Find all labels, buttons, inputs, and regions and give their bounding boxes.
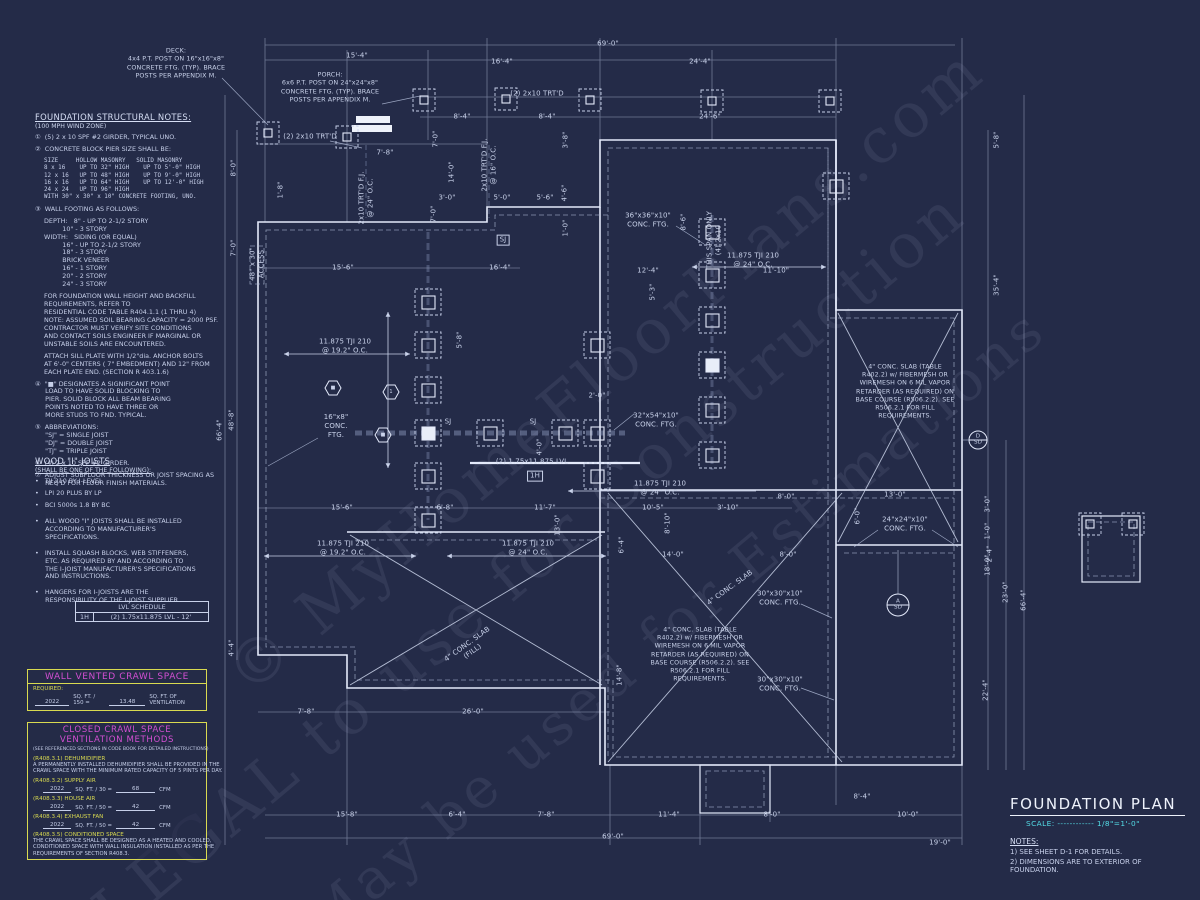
dim-label: 8'-0" [779,551,796,560]
dim-label: 6'-4" [618,536,627,553]
pointload-hex: ■ [381,432,386,438]
house-area: 2022 [43,804,71,811]
closed-crawl-title: CLOSED CRAWL SPACE [33,725,201,735]
footing-label: 30"x30"x10" CONC. FTG. [757,589,803,607]
dim-label: 5'-8" [456,331,465,348]
notes-head: NOTES: [1010,837,1185,846]
exhaust-unit: CFM [159,823,171,829]
joist-label: 11.875 TJI 210 @ 24" O.C. [634,479,686,497]
dim-label: 1'-8" [277,181,286,198]
structural-notes-panel: FOUNDATION STRUCTURAL NOTES: (100 MPH WI… [35,112,240,492]
dim-label: 7'-0" [432,130,441,147]
dim-label: 8'-0" [763,811,780,820]
house-formula: SQ. FT. / 50 = [75,805,112,811]
note-line: ④ "■" DESIGNATES A SIGNIFICANT POINT LOA… [35,381,240,421]
lvl-row-spec: (2) 1.75x11.875 LVL - 12' [94,613,208,621]
dim-label: 5'-6" [536,194,553,203]
vent-formula: SQ. FT. / 150 = [73,694,105,706]
joist-bullet: • ALL WOOD "I" JOISTS SHALL BE INSTALLED… [35,518,240,542]
section-head: (R408.3.4) EXHAUST FAN [33,814,201,820]
scale-value: 1/8"=1'-0" [1097,819,1140,828]
exhaust-value: 42 [116,822,155,829]
detail-marker: A SD [894,599,902,612]
scale-label: SCALE: [1026,819,1055,828]
dim-label: 10'-0" [897,811,919,820]
dim-label: 8'-4" [538,113,555,122]
dim-label: 24'-6" [699,113,721,122]
dim-label: 13'-0" [884,491,906,500]
joists-subtitle: (SHALL BE ONE OF THE FOLLOWING): [35,467,240,474]
dim-label: 15'-8" [336,811,358,820]
dim-label: 6'-0" [854,507,863,524]
note-line: ① (5) 2 x 10 SPF #2 GIRDER, TYPICAL UNO. [35,134,240,142]
dim-label: 8'-4" [853,793,870,802]
exhaust-area: 2022 [43,822,71,829]
footing-label: 24"x24"x10" CONC. FTG. [882,515,928,533]
joist-label: 11.875 TJI 210 @ 19.2" O.C. [319,337,371,355]
dim-label: 1'-0" [562,219,571,236]
joist-bullet: • LPI 20 PLUS BY LP [35,490,240,498]
dim-label: 19'-0" [929,839,951,848]
exhaust-formula: SQ. FT. / 50 = [75,823,112,829]
title-block: FOUNDATION PLAN SCALE: ------------ 1/8"… [1010,795,1185,874]
wall-vented-title: WALL VENTED CRAWL SPACE [33,672,201,682]
lvl-schedule-title: LVL SCHEDULE [75,601,209,613]
section-body: A PERMANENTLY INSTALLED DEHUMIDIFIER SHA… [33,762,201,775]
dim-label: 14'-8" [616,664,625,686]
note-line: DEPTH: 8" - UP TO 2-1/2 STORY 10" - 3 ST… [44,218,240,289]
dim-label: 66'-4" [1020,589,1029,611]
section-body: THE CRAWL SPACE SHALL BE DESIGNED AS A H… [33,838,201,858]
dim-label: 7'-0" [430,205,439,222]
notes-subtitle: (100 MPH WIND ZONE) [35,123,240,130]
dim-label: 15'-4" [346,52,368,61]
house-value: 42 [116,804,155,811]
note-line: ③ WALL FOOTING AS FOLLOWS: [35,206,240,214]
dim-label: 15'-6" [332,264,354,273]
dim-label: 3'-8" [562,131,571,148]
required-label: REQUIRED: [33,686,201,692]
pointload-hex: ■ [331,385,336,391]
dim-label: 18'-0" [984,554,993,576]
vent-result: 13.48 [109,699,145,706]
blueprint-sheet: © MyHomeFloorPlans.com ILLEGAL to use fo… [0,0,1200,900]
lvl-schedule: LVL SCHEDULE 1H (2) 1.75x11.875 LVL - 12… [75,601,209,622]
dim-label: 2'-0" [588,392,605,401]
dim-label: 7'-8" [376,149,393,158]
dim-label: 11'-4" [658,811,680,820]
dim-label: 6'-4" [448,811,465,820]
dim-label: 11'-7" [534,504,556,513]
joist-label: 2x10 TRT'D F.J. @ 16" O.C. [480,138,498,191]
joist-label: 2x10 TRT'D F.J. @ 24" O.C. [357,171,375,224]
joist-bullet: • BCI 5000s 1.8 BY BC [35,502,240,510]
dim-label: 12'-4" [637,267,659,276]
lvl-tag: 1H [527,471,543,482]
joist-label: 11.875 TJI 210 @ 24" O.C. [502,539,554,557]
supply-value: 68 [116,786,155,793]
joist-tag: SJ [445,418,452,427]
closed-crawl-see-note: (SEE REFERENCED SECTIONS IN CODE BOOK FO… [33,747,201,753]
supply-area: 2022 [43,786,71,793]
dim-label: 7'-8" [297,708,314,717]
dim-label: 15'-6" [331,504,353,513]
dim-label: 8'-6" [680,213,689,230]
dim-label: 8'-0" [777,493,794,502]
dim-label: 69'-0" [597,40,619,49]
wall-vented-box: WALL VENTED CRAWL SPACE REQUIRED: 2022 S… [27,669,207,711]
dim-label: 69'-0" [602,833,624,842]
dim-label: 4'-6" [561,184,570,201]
dim-label: 13'-0" [554,514,563,536]
dim-label: 23'-0" [1002,581,1011,603]
beam-label: (2) 2x10 TRT'D [510,90,564,99]
vent-area: 2022 [35,699,69,706]
scale-dots: ------------ [1057,819,1094,828]
title-note: 2) DIMENSIONS ARE TO EXTERIOR OF FOUNDAT… [1010,858,1185,874]
dim-label: 5'-3" [649,283,658,300]
lvl-schedule-row: 1H (2) 1.75x11.875 LVL - 12' [75,613,209,622]
beam-label: (2) 2x10 TRT'D [283,133,337,142]
lvl-label: (2) 1.75x11.875 LVL [496,458,568,467]
joists-title: WOOD "I" JOISTS [35,456,240,466]
deck-note: DECK: 4x4 P.T. POST ON 16"x16"x8" CONCRE… [127,46,225,79]
dim-label: 14'-0" [448,161,457,183]
dim-label: 24'-4" [689,58,711,67]
dim-label: 10'-5" [642,504,664,513]
span-note: THIS SPAN ONLY (4) 2x10 [705,211,723,269]
note-line: ② CONCRETE BLOCK PIER SIZE SHALL BE: [35,146,240,154]
dim-label: 7'-8" [537,811,554,820]
joist-label: 11.875 TJI 210 @ 19.2" O.C. [317,539,369,557]
dim-label: 5'-8" [993,131,1002,148]
sheet-title: FOUNDATION PLAN [1010,795,1185,816]
title-note: 1) SEE SHEET D-1 FOR DETAILS. [1010,848,1185,856]
detail-marker: D SD [974,434,982,447]
house-unit: CFM [159,805,171,811]
joist-bullet: • TJI 210 BY I-LEVEL [35,478,240,486]
access-label: 48" x 30" ACCESS [248,247,266,281]
dim-label: 14'-0" [662,551,684,560]
keynote-hex: 1 [389,389,392,395]
dim-label: 4'-4" [228,639,237,656]
supply-unit: CFM [159,787,171,793]
notes-title: FOUNDATION STRUCTURAL NOTES: [35,112,240,122]
dim-label: 1'-0" [984,522,993,539]
dim-label: 3'-10" [717,504,739,513]
note-line: ATTACH SILL PLATE WITH 1/2"dia. ANCHOR B… [44,353,240,377]
dim-label: 3'-0" [984,495,993,512]
note-line: FOR FOUNDATION WALL HEIGHT AND BACKFILL … [44,293,240,349]
dim-label: 3'-0" [438,194,455,203]
joist-tag: SJ [497,235,510,246]
footing-label: 16"x8" CONC. FTG. [324,413,349,439]
slab-note: 4" CONC. SLAB (TABLE R402.2) w/ FIBERMES… [856,363,955,420]
dim-label: 16'-4" [489,264,511,273]
section-head: (R408.3.2) SUPPLY AIR [33,778,201,784]
dim-label: 8'-4" [453,113,470,122]
dim-label: 16'-4" [491,58,513,67]
scale-note: SCALE: ------------ 1/8"=1'-0" [1026,819,1185,828]
note-line: ⑤ ABBREVIATIONS: "SJ" = SINGLE JOIST "DJ… [35,424,240,456]
closed-crawl-box: CLOSED CRAWL SPACE VENTILATION METHODS (… [27,722,207,860]
note-table: SIZE HOLLOW MASONRY SOLID MASONRY 8 x 16… [44,158,240,202]
dim-label: 35'-4" [993,274,1002,296]
wood-joists-panel: WOOD "I" JOISTS (SHALL BE ONE OF THE FOL… [35,456,240,609]
porch-note: PORCH: 6x6 P.T. POST ON 24"x24"x8" CONCR… [281,70,379,103]
slab-note: 4" CONC. SLAB (TABLE R402.2) w/ FIBERMES… [651,626,750,683]
dim-label: 22'-4" [982,679,991,701]
dim-label: 4'-0" [536,438,545,455]
footing-label: 32"x54"x10" CONC. FTG. [633,411,679,429]
joist-bullet: • INSTALL SQUASH BLOCKS, WEB STIFFENERS,… [35,550,240,582]
lvl-row-tag: 1H [76,613,94,621]
dim-label: 6'-8" [436,504,453,513]
footing-label: 30"x30"x10" CONC. FTG. [757,675,803,693]
footing-label: 36"x36"x10" CONC. FTG. [625,211,671,229]
dim-label: 26'-0" [462,708,484,717]
dim-label: 11'-10" [763,267,789,276]
supply-formula: SQ. FT. / 30 = [75,787,112,793]
section-head: (R408.3.3) HOUSE AIR [33,796,201,802]
joist-tag: SJ [530,418,537,427]
vent-unit: SQ. FT. OF VENTILATION [149,694,201,706]
dim-label: 8'-10" [664,512,673,534]
closed-crawl-title2: VENTILATION METHODS [33,735,201,745]
dim-label: 5'-0" [493,194,510,203]
